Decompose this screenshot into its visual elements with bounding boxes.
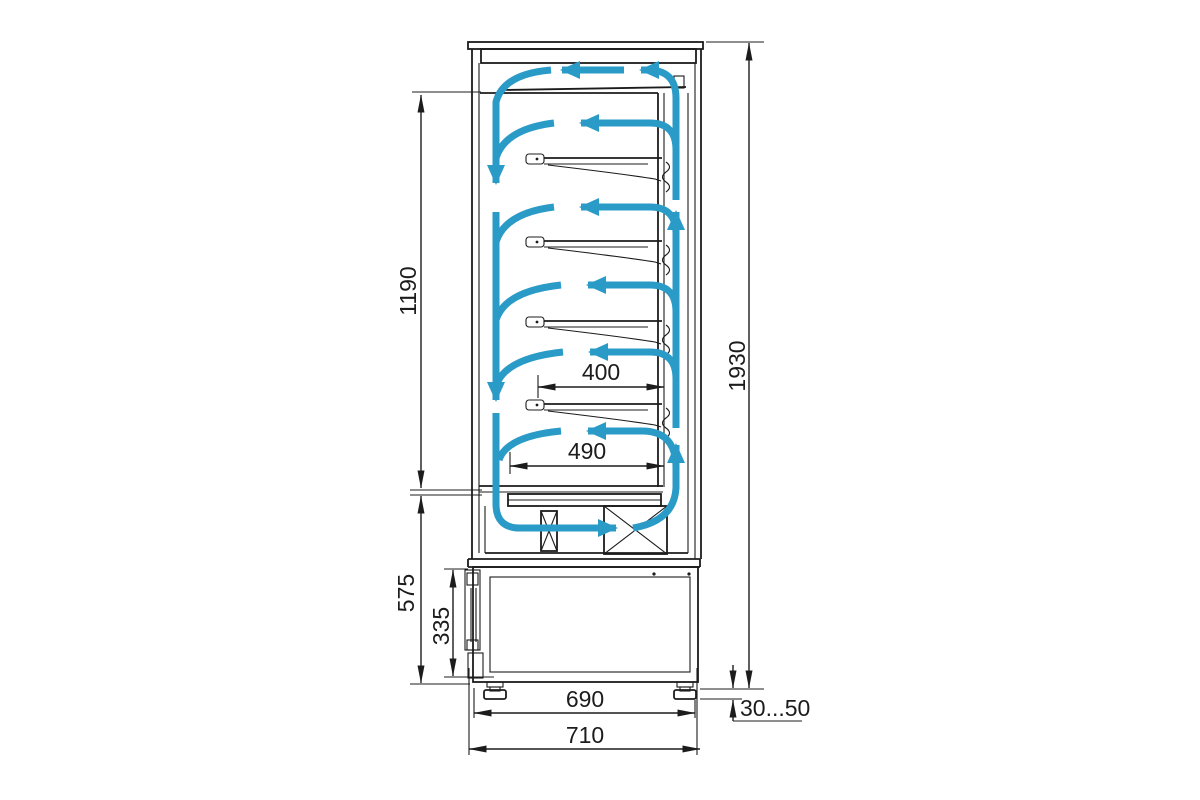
airflow-join-1 (496, 123, 554, 158)
adjustable-foot-right (674, 682, 696, 699)
dimensions: 1190 1930 575 335 400 490 690 710 30...5… (393, 42, 810, 755)
screw-dot (652, 572, 655, 575)
airflow-join-5 (499, 431, 561, 460)
base-unit (465, 559, 700, 699)
base-face (473, 567, 698, 682)
shelf-bracket (548, 411, 661, 427)
dim-label-400: 400 (582, 359, 620, 385)
shelf-2 (526, 237, 670, 275)
airflow-level-1 (581, 123, 676, 150)
base-inner-panel (490, 577, 690, 672)
shelf-front-stud (536, 321, 539, 324)
screw-dot (687, 572, 690, 575)
dim-label-1190: 1190 (395, 266, 421, 315)
airflow-join-2 (496, 207, 554, 242)
airflow-level-3 (588, 285, 676, 312)
shelf-front-stud (536, 241, 539, 244)
shelf-bracket (548, 328, 661, 344)
canopy-face (481, 49, 696, 63)
shelf-bracket (548, 165, 661, 181)
dim-label-490: 490 (568, 438, 606, 464)
door-hinge-strip (465, 570, 483, 678)
canopy-liner (503, 87, 686, 90)
dim-label-335: 335 (428, 607, 454, 645)
shelf-1 (526, 154, 670, 192)
dim-label-575: 575 (393, 574, 419, 612)
dim-label-30-50: 30...50 (740, 695, 810, 721)
airflow-level-2 (581, 207, 676, 234)
base-top-band (468, 559, 700, 567)
canopy-cap (468, 42, 703, 49)
technical-drawing-page: 1190 1930 575 335 400 490 690 710 30...5… (0, 0, 1200, 800)
shelf-front-stud (536, 158, 539, 161)
airflow-join-3 (496, 285, 561, 320)
airflow-join-4 (496, 352, 563, 386)
display-case-section-drawing: 1190 1930 575 335 400 490 690 710 30...5… (0, 0, 1200, 800)
dim-label-690: 690 (566, 686, 604, 712)
bottom-deck (479, 486, 663, 506)
dim-label-710: 710 (566, 722, 604, 748)
shelf-bracket (548, 248, 661, 264)
shelf-front-stud (536, 404, 539, 407)
adjustable-foot-left (484, 682, 506, 699)
dim-label-1930: 1930 (724, 340, 750, 391)
